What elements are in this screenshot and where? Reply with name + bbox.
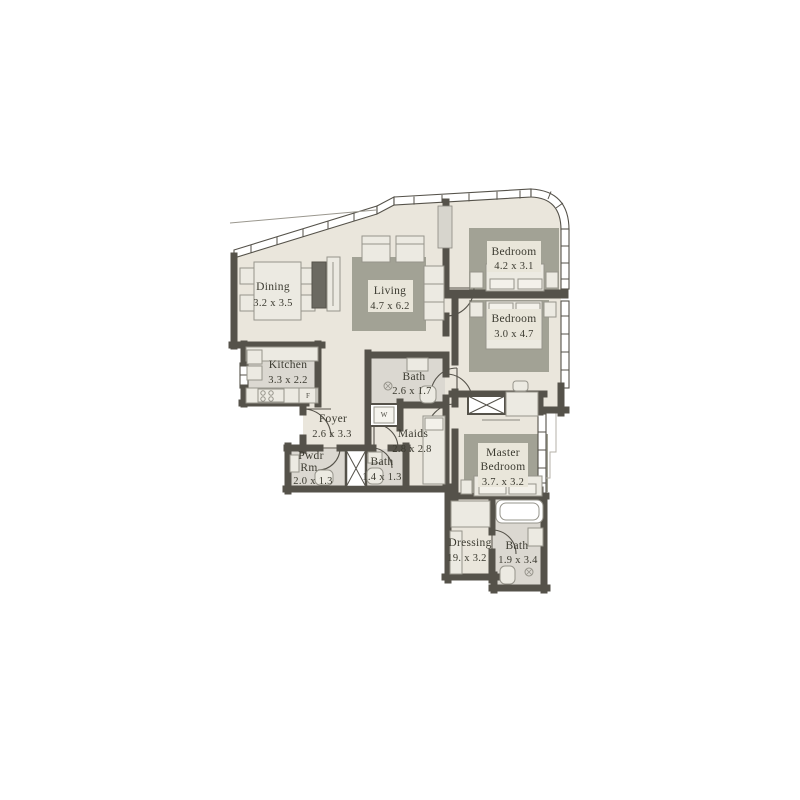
bath-guest-dims: 2.6 x 1.7 — [392, 386, 431, 397]
foyer-dims: 2.6 x 3.3 — [312, 429, 351, 440]
bath-small-name: Bath — [371, 456, 394, 468]
foyer-name: Foyer — [319, 413, 347, 425]
bedroom-1-dims: 4.2 x 3.1 — [494, 261, 533, 272]
bedroom-2-dims: 3.0 x 4.7 — [494, 329, 533, 340]
fridge-label: F — [306, 392, 310, 400]
bath-master-dims: 1.9 x 3.4 — [498, 555, 538, 566]
living-name: Living — [374, 285, 406, 297]
powder-name-1: Pwdr — [298, 450, 323, 462]
floor-plan-page: Dining 3.2 x 3.5 Living 4.7 x 6.2 Bedroo… — [0, 0, 800, 800]
window-right-bedroom1 — [561, 229, 569, 289]
maids-dims: 2.8 x 2.8 — [392, 444, 431, 455]
bath-master-name: Bath — [506, 540, 529, 552]
washer-label: W — [381, 411, 388, 419]
tv-cabinet — [312, 262, 326, 308]
master-name-2: Bedroom — [481, 461, 526, 473]
floor-plan-drawing: Dining 3.2 x 3.5 Living 4.7 x 6.2 Bedroo… — [0, 0, 800, 800]
master-dresser — [506, 392, 538, 416]
master-chair — [513, 381, 528, 391]
master-name-1: Master — [486, 447, 520, 459]
dining-dims: 3.2 x 3.5 — [253, 298, 292, 309]
maids-name: Maids — [398, 428, 428, 440]
dressing-dims: 19. x 3.2 — [447, 553, 486, 564]
bedroom-1-name: Bedroom — [492, 246, 537, 258]
powder-name-2: Rm — [300, 462, 317, 474]
living-dims: 4.7 x 6.2 — [370, 301, 409, 312]
powder-dims: 2.0 x 1.3 — [293, 476, 332, 487]
master-sink-icon — [528, 528, 543, 546]
room-label-master: Master Bedroom 3.7. x 3.2 — [481, 447, 526, 488]
duct-column — [438, 206, 452, 248]
kitchen-dims: 3.3 x 2.2 — [268, 375, 307, 386]
master-toilet-icon — [500, 566, 515, 584]
kitchen-name: Kitchen — [269, 359, 308, 371]
master-dims: 3.7. x 3.2 — [482, 477, 524, 488]
living-sofa — [424, 266, 444, 320]
bedroom-2-name: Bedroom — [492, 313, 537, 325]
dining-name: Dining — [256, 281, 290, 293]
bath-small-dims: 1.4 x 1.3 — [362, 472, 401, 483]
bath-guest-name: Bath — [403, 371, 426, 383]
window-right-bedroom2 — [561, 301, 569, 388]
dressing-wardrobe — [451, 501, 490, 527]
sink-icon — [407, 358, 428, 371]
dressing-name: Dressing — [448, 537, 491, 549]
